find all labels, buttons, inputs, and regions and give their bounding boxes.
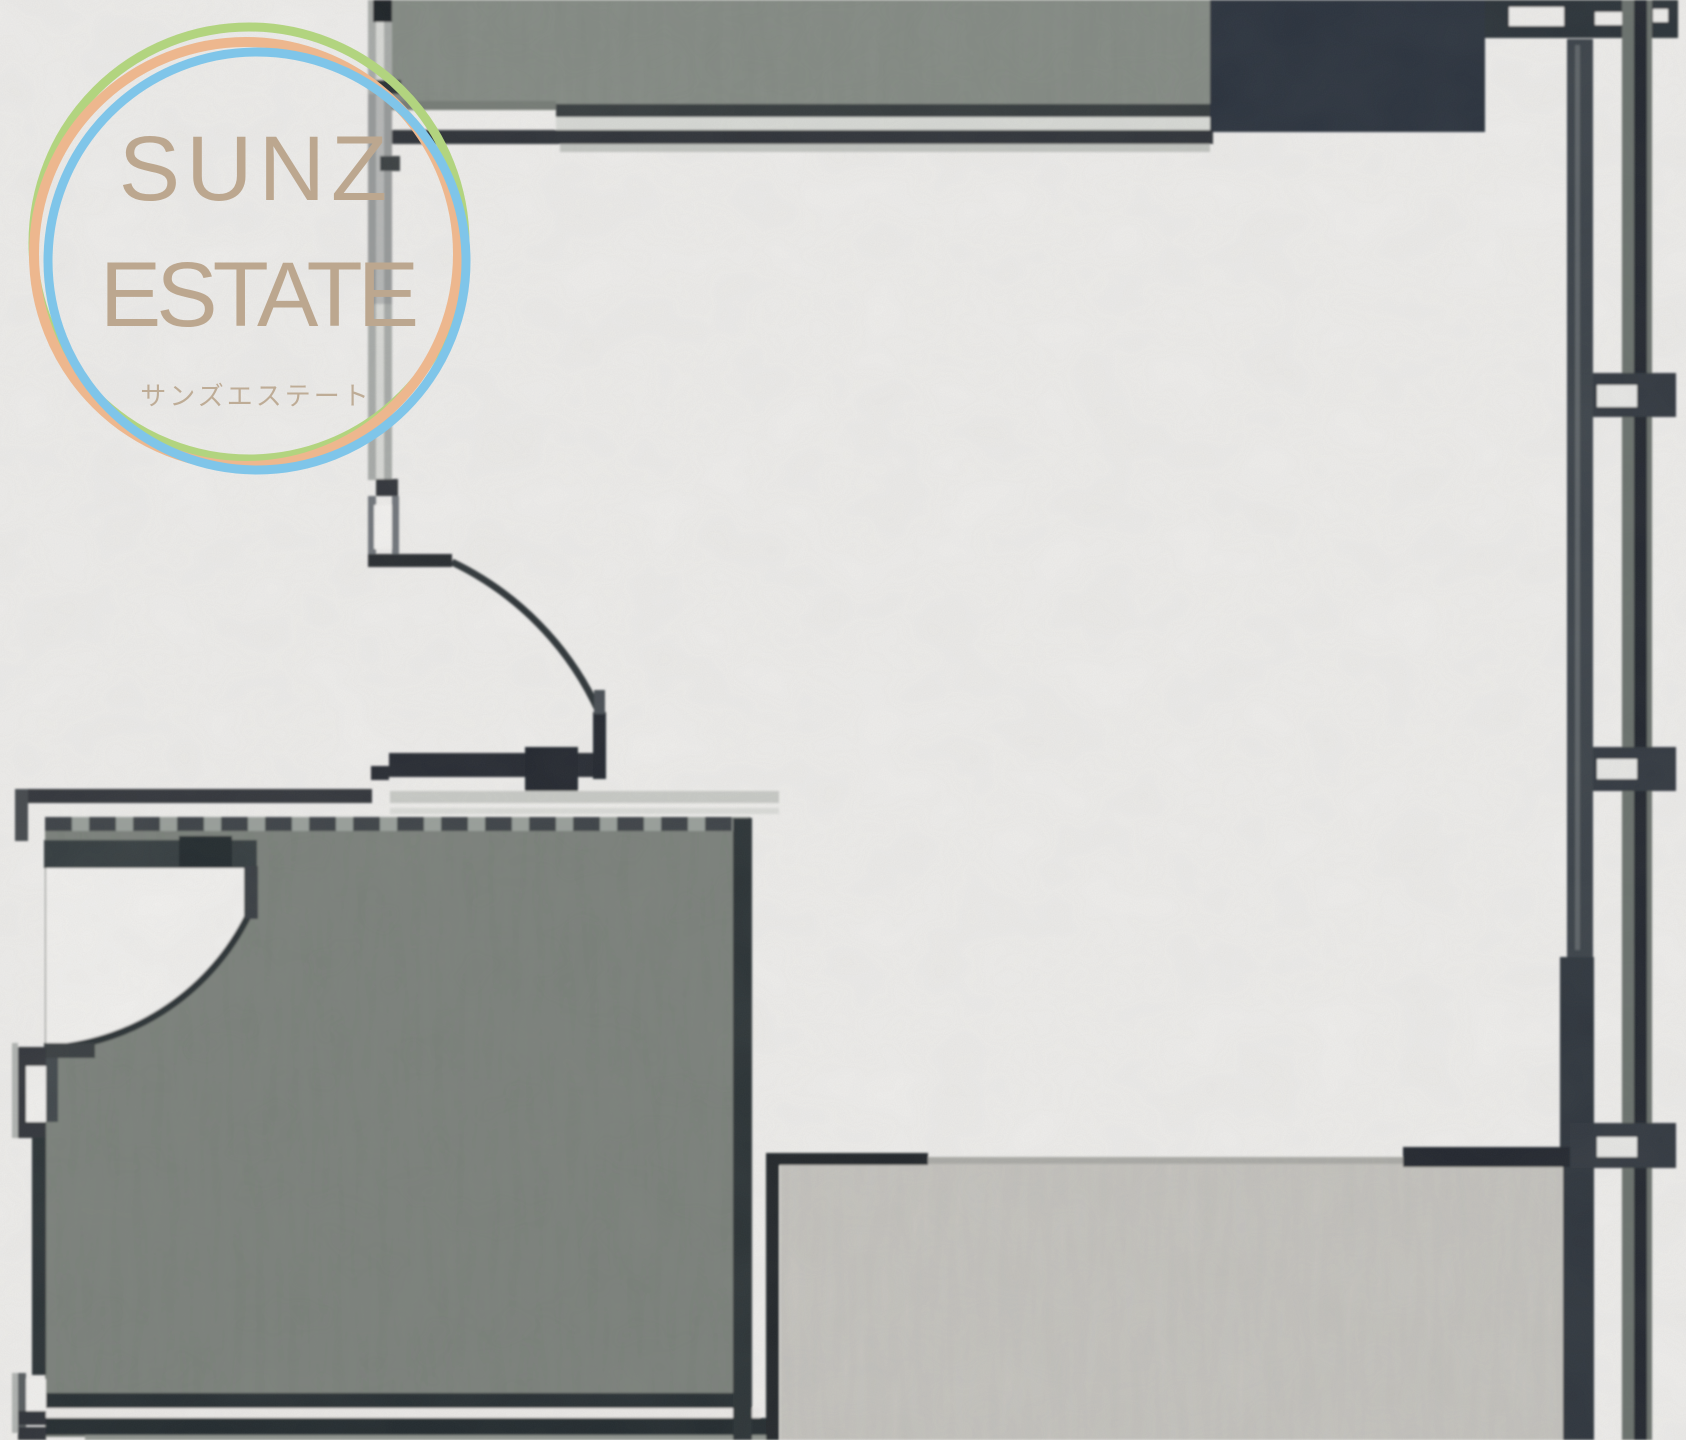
svg-text:ESTATE: ESTATE <box>100 244 416 346</box>
svg-text:SUNZ: SUNZ <box>119 118 393 220</box>
svg-text:サンズエステート: サンズエステート <box>140 381 371 411</box>
